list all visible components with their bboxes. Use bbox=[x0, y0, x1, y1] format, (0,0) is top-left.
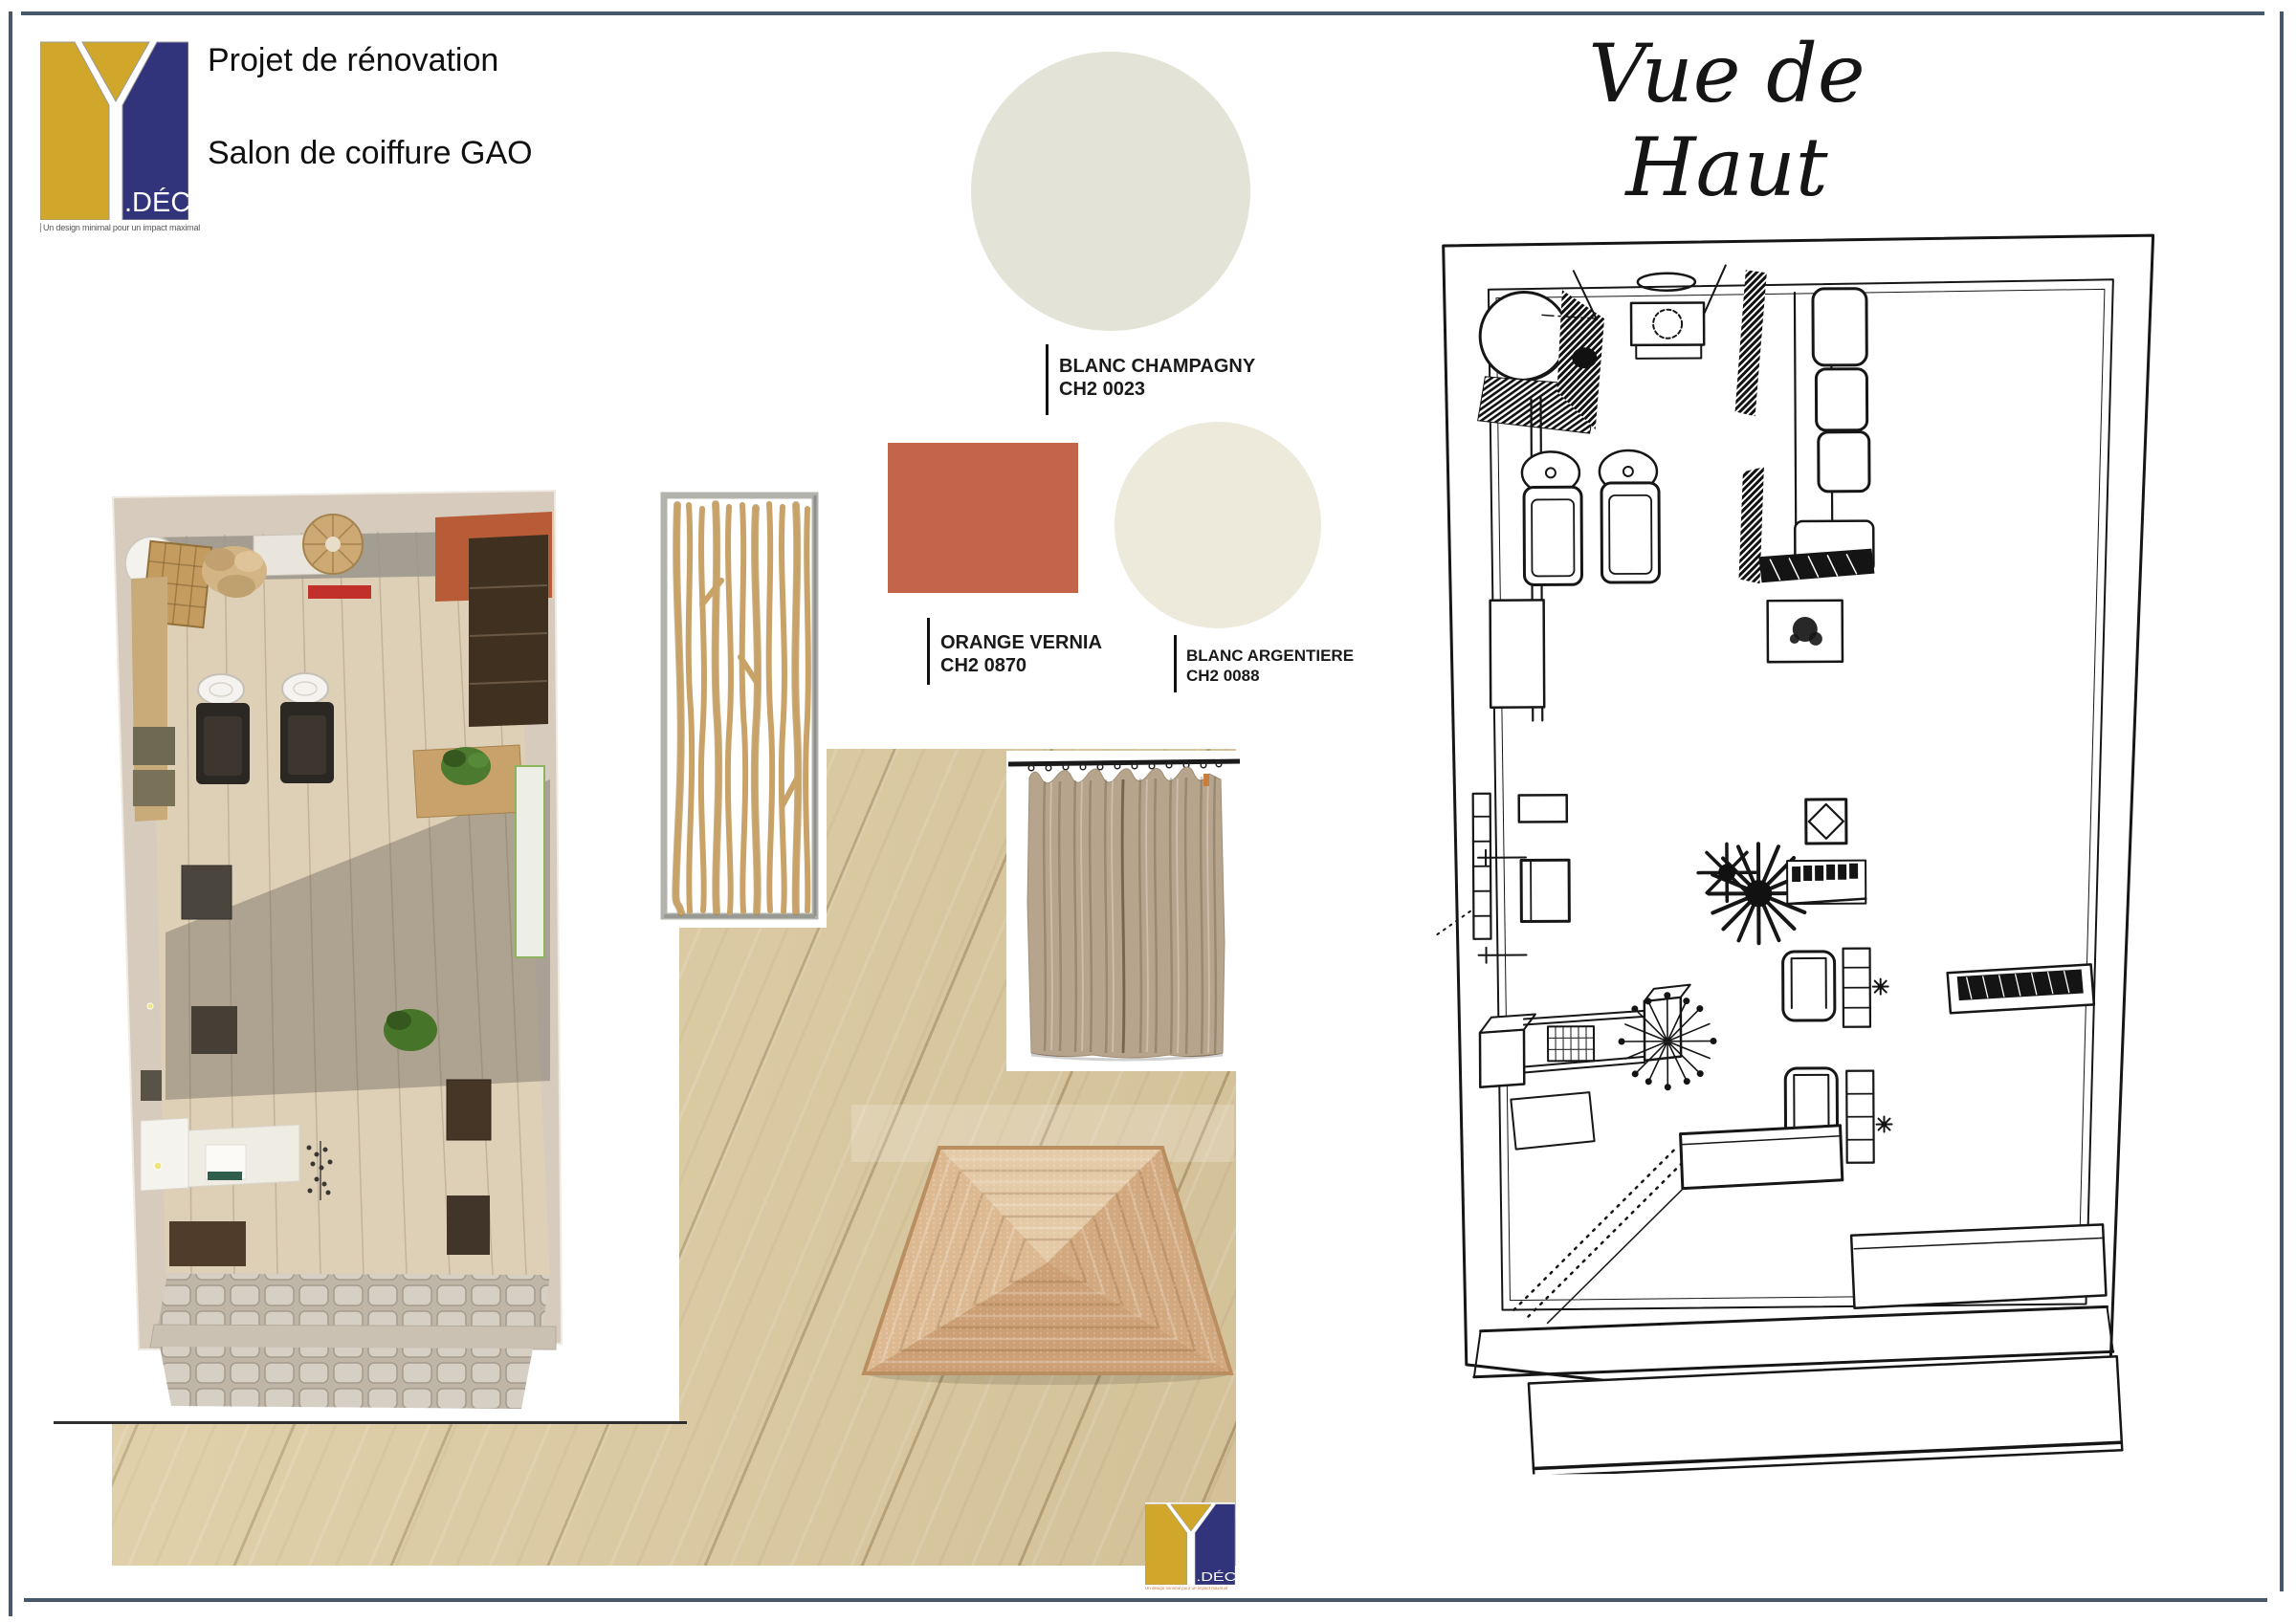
page-border-left bbox=[9, 11, 12, 1616]
swatch-name: ORANGE VERNIA bbox=[940, 631, 1102, 654]
footer-logo-tagline: Un design minimal pour un impact maximal bbox=[1145, 1586, 1235, 1590]
branch-divider-panel-photo bbox=[656, 490, 827, 928]
swatch-label: BLANC ARGENTIERE CH2 0088 bbox=[1186, 646, 1354, 686]
swatch-orange-vernia bbox=[888, 443, 1078, 593]
linen-curtain-photo bbox=[1006, 751, 1242, 1071]
project-title: Projet de rénovation bbox=[208, 42, 498, 79]
jute-rug-photo bbox=[851, 1102, 1244, 1389]
swatch-blanc-argentiere bbox=[1115, 422, 1321, 628]
swatch-label: ORANGE VERNIA CH2 0870 bbox=[940, 631, 1102, 677]
swatch-blanc-champagny bbox=[971, 52, 1250, 331]
ydeco-logo-icon: .DÉCO bbox=[40, 38, 188, 220]
page-border-top bbox=[21, 11, 2264, 15]
floor-plan-title: Vue de Haut bbox=[1521, 27, 1932, 214]
ydeco-logo-icon-footer: .DÉCO bbox=[1145, 1502, 1235, 1585]
floor-plan-sketch bbox=[1432, 228, 2175, 1475]
curtain-illustration bbox=[1006, 751, 1242, 1071]
render-illustration bbox=[91, 483, 679, 1423]
swatch-name: BLANC CHAMPAGNY bbox=[1059, 355, 1255, 378]
swatch-code: CH2 0088 bbox=[1186, 666, 1354, 686]
page-border-right bbox=[2280, 11, 2284, 1591]
project-subtitle: Salon de coiffure GAO bbox=[208, 135, 533, 172]
floor-plan-illustration bbox=[1432, 228, 2175, 1475]
swatch-label-rule bbox=[1174, 635, 1177, 692]
swatch-label: BLANC CHAMPAGNY CH2 0023 bbox=[1059, 355, 1255, 401]
branch-divider-illustration bbox=[656, 490, 827, 928]
swatch-label-rule bbox=[1046, 344, 1049, 415]
logo-wordmark: .DÉCO bbox=[1196, 1570, 1235, 1584]
swatch-name: BLANC ARGENTIERE bbox=[1186, 646, 1354, 666]
page-border-bottom bbox=[24, 1598, 2267, 1602]
swatch-code: CH2 0870 bbox=[940, 654, 1102, 677]
swatch-label-rule bbox=[927, 618, 930, 685]
presentation-board: .DÉCO Un design minimal pour un impact m… bbox=[0, 0, 2296, 1623]
logo-tagline: Un design minimal pour un impact maximal bbox=[40, 223, 206, 232]
render-underline bbox=[54, 1421, 687, 1424]
rug-illustration bbox=[851, 1102, 1244, 1389]
salon-3d-top-view-render bbox=[91, 483, 679, 1423]
swatch-code: CH2 0023 bbox=[1059, 378, 1255, 401]
logo-wordmark: .DÉCO bbox=[124, 186, 188, 218]
